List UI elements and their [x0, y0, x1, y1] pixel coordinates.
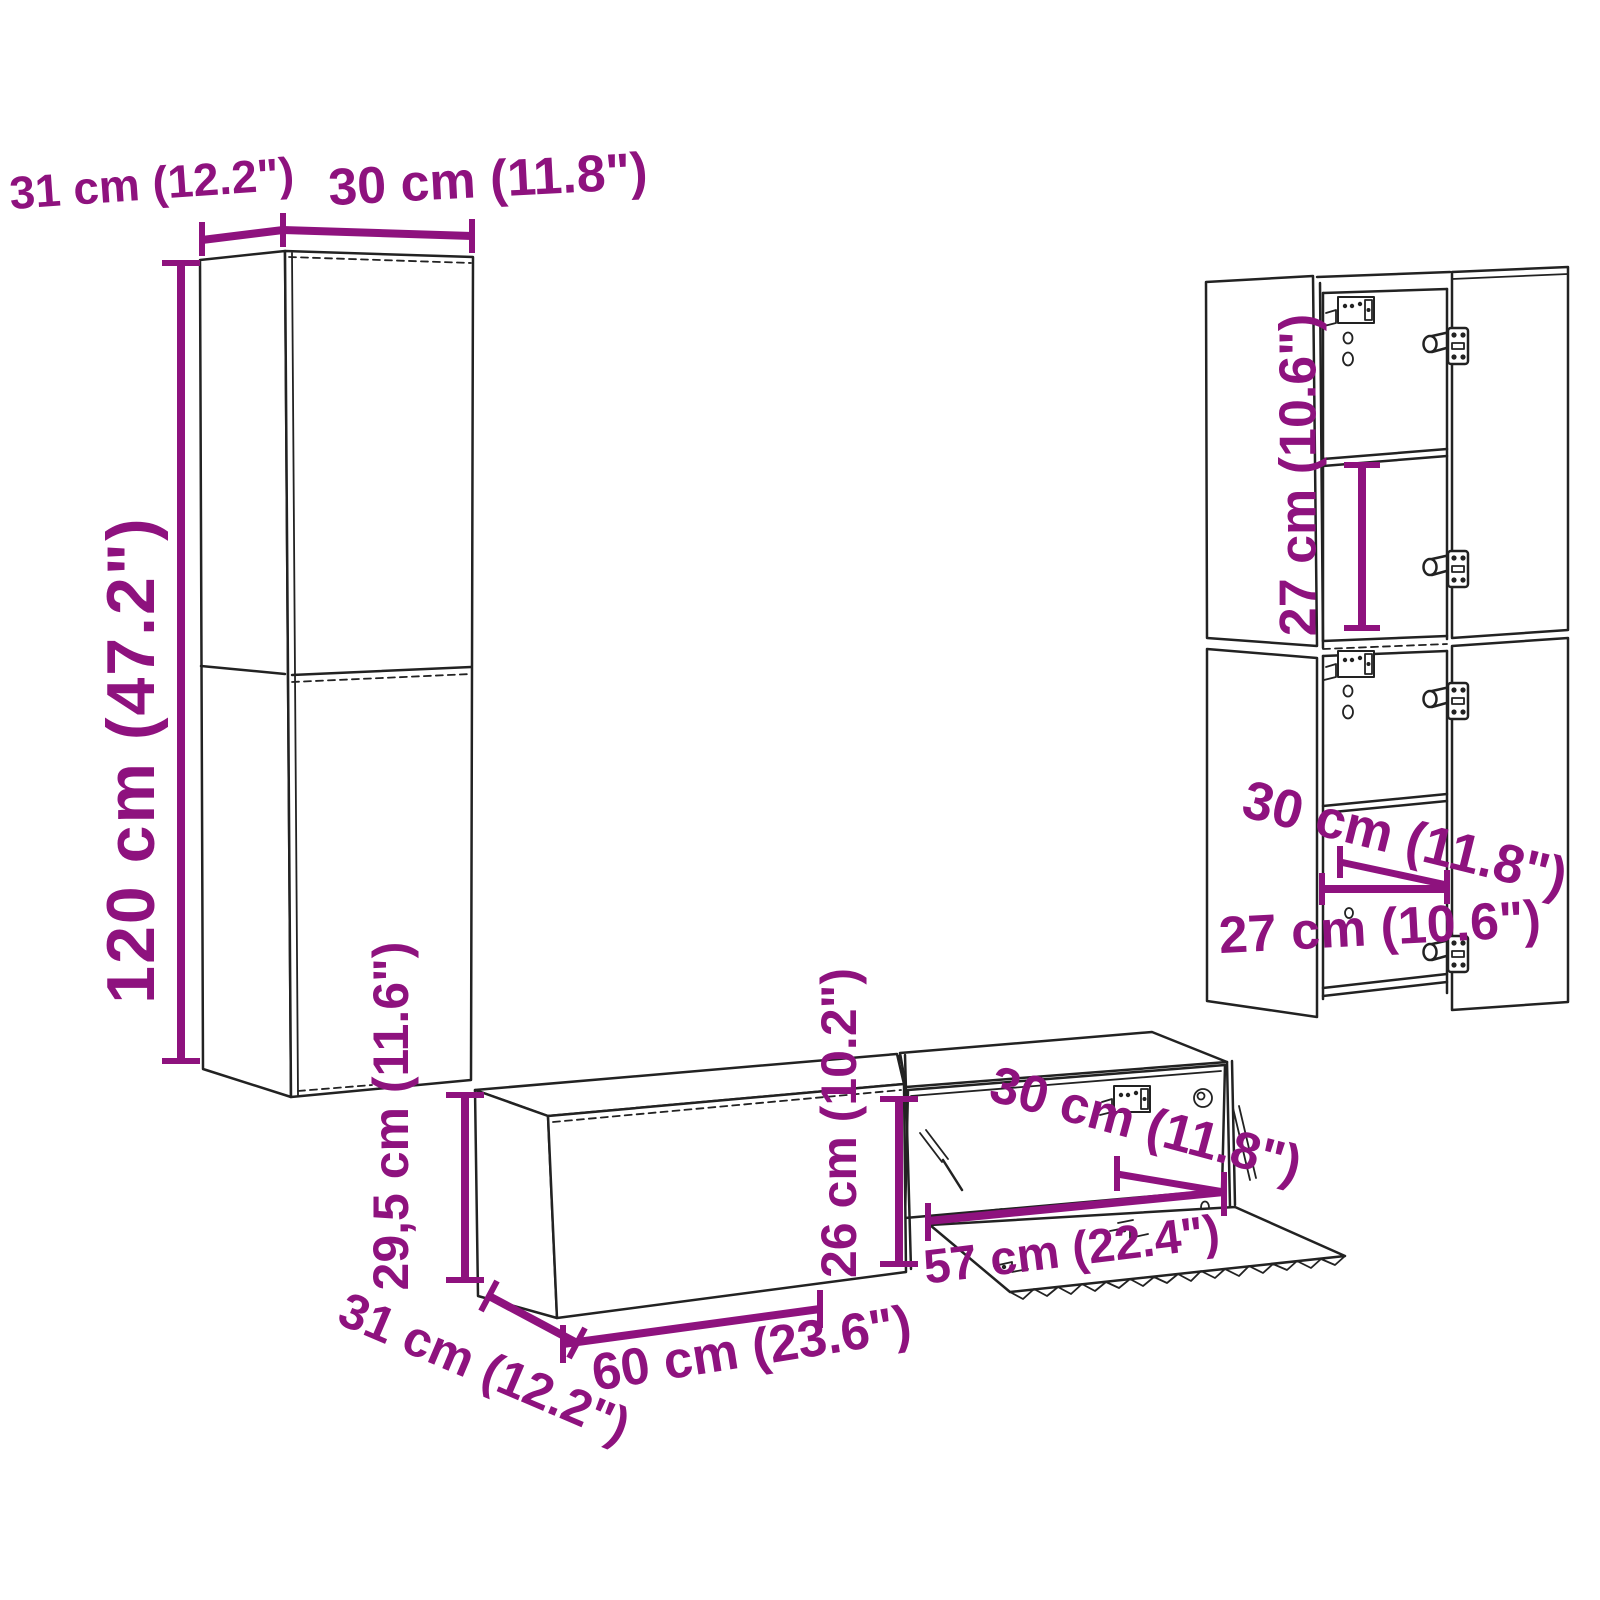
shelf-pin-hole-icon [1344, 333, 1353, 344]
shelf-pin-hole-icon [1343, 706, 1353, 719]
dim-label-bench-height: 29,5 cm (11.6") [363, 942, 419, 1291]
upper-right-door-open [1452, 267, 1568, 638]
dim-label-bench-interior-height: 26 cm (10.2") [811, 968, 867, 1278]
bench-left-side-face [475, 1090, 557, 1318]
diagram-canvas: 31 cm (12.2") 30 cm (11.8") 120 cm (47.2… [0, 0, 1600, 1600]
wall-mount-bracket-icon [1324, 297, 1374, 326]
upper-top-edge [1317, 272, 1450, 277]
unit-divider [1323, 636, 1447, 641]
dim-label-tall-width: 30 cm (11.8") [327, 142, 649, 217]
lower-interior-bottom [1323, 974, 1447, 996]
dim-label-tall-height: 120 cm (47.2") [93, 516, 169, 1003]
tv-bench [475, 1032, 1345, 1318]
unit-divider-gap [1323, 644, 1447, 649]
dimension-diagram: 31 cm (12.2") 30 cm (11.8") 120 cm (47.2… [0, 0, 1600, 1600]
dim-line-tall-top [202, 230, 472, 240]
shelf-pin-hole-icon [1344, 686, 1353, 697]
tall-wall-cabinet [200, 251, 473, 1097]
dim-label-tall-depth: 31 cm (12.2") [8, 147, 296, 219]
dim-label-bench-width: 60 cm (23.6") [588, 1295, 915, 1403]
dim-label-wall-shelf-height: 27 cm (10.6") [1270, 314, 1328, 636]
upper-ceiling [1323, 289, 1447, 293]
shelf-pin-hole-icon [1343, 353, 1353, 366]
upper-shelf [1323, 449, 1447, 466]
